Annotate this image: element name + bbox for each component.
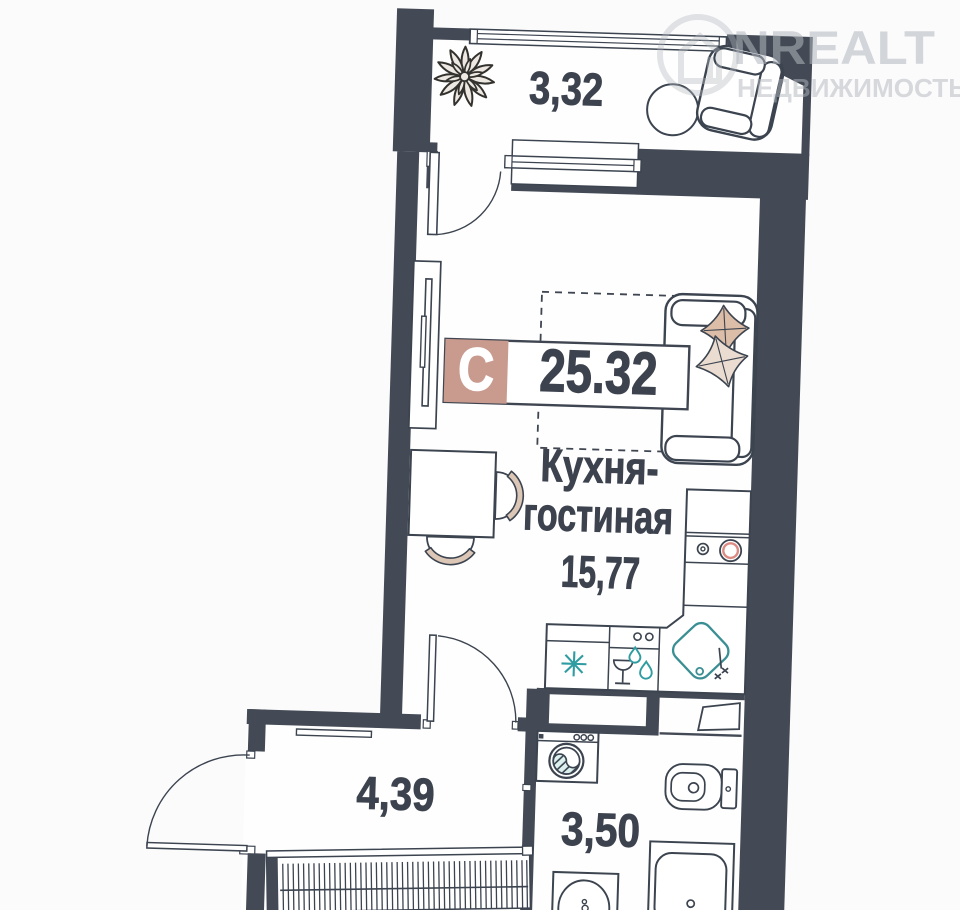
svg-text:3,50: 3,50 — [560, 802, 641, 857]
svg-text:НЕДВИЖИМОСТЬ: НЕДВИЖИМОСТЬ — [737, 73, 960, 103]
svg-text:3,32: 3,32 — [528, 61, 604, 115]
svg-text:Кухня-: Кухня- — [540, 439, 660, 495]
svg-text:С: С — [457, 335, 495, 403]
svg-text:NREALT: NREALT — [733, 21, 935, 74]
svg-text:15,77: 15,77 — [560, 546, 641, 599]
svg-text:4,39: 4,39 — [356, 766, 436, 820]
svg-text:25.32: 25.32 — [539, 337, 659, 408]
svg-text:гостиная: гостиная — [522, 487, 674, 544]
